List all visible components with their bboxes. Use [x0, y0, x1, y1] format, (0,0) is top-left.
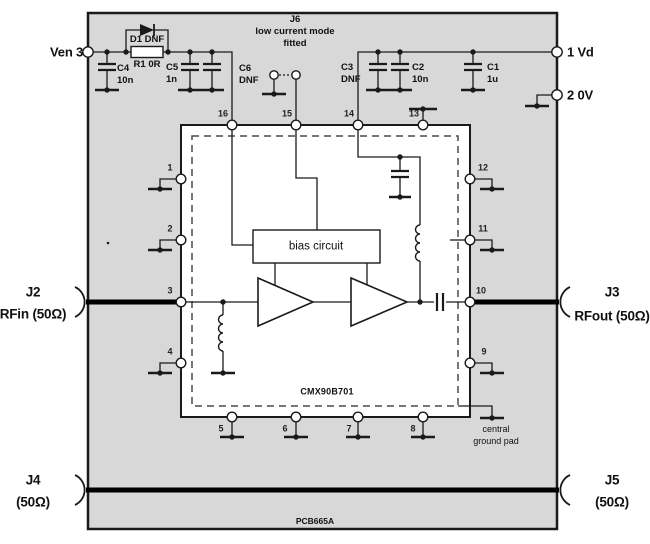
- pin-15-label: 15: [282, 110, 292, 119]
- schematic-drawing: [0, 0, 650, 544]
- connector-j5-label: J5: [605, 473, 620, 487]
- pin-14-label: 14: [344, 110, 354, 119]
- connector-j3-label: J3: [605, 285, 620, 299]
- cap-c3-label: C3DNF: [341, 62, 361, 86]
- pin-13-label: 13: [409, 110, 419, 119]
- schematic-page: Ven 3 1 Vd 2 0V D1 DNF R1 0R C410n C51n …: [0, 0, 650, 544]
- jumper-j6-label: J6 low current mode fitted: [255, 14, 334, 50]
- connector-j4-desc: (50Ω): [16, 495, 50, 509]
- connector-j2-desc: RFin (50Ω): [0, 307, 66, 321]
- resistor-symbol: [131, 47, 163, 58]
- cap-c1-label: C11u: [487, 62, 499, 86]
- cap-c2-label: C210n: [412, 62, 428, 86]
- pin-4-label: 4: [167, 348, 172, 357]
- connector-j3-desc: RFout (50Ω): [574, 309, 649, 323]
- resistor-r1-label: R1 0R: [134, 59, 161, 71]
- board-name-label: PCB665A: [296, 517, 334, 526]
- cap-c5-label: C51n: [166, 62, 178, 86]
- bias-circuit-label: bias circuit: [289, 241, 343, 253]
- pin-12-label: 12: [478, 164, 488, 173]
- pin-8-label: 8: [410, 425, 415, 434]
- pin-11-label: 11: [478, 225, 488, 234]
- stray-mark: [107, 242, 110, 245]
- terminal-0v-label: 2 0V: [567, 89, 593, 102]
- pin-16-label: 16: [218, 110, 228, 119]
- terminal-vd-label: 1 Vd: [567, 46, 594, 59]
- diode-d1-label: D1 DNF: [130, 34, 164, 46]
- pin-1-label: 1: [167, 164, 172, 173]
- pin-9-label: 9: [481, 348, 486, 357]
- cap-c6-label: C6DNF: [239, 63, 259, 87]
- pin-7-label: 7: [346, 425, 351, 434]
- pin-6-label: 6: [282, 425, 287, 434]
- pin-5-label: 5: [218, 425, 223, 434]
- pin-3-label: 3: [167, 287, 172, 296]
- connector-j4-label: J4: [26, 473, 41, 487]
- pin-2-label: 2: [167, 225, 172, 234]
- connector-j2-label: J2: [26, 285, 41, 299]
- chip-name-label: CMX90B701: [300, 388, 353, 397]
- connector-j5-desc: (50Ω): [595, 495, 629, 509]
- pin-10-label: 10: [476, 287, 486, 296]
- central-ground-pad-label: central ground pad: [473, 423, 519, 447]
- terminal-ven-label: Ven 3: [50, 46, 83, 59]
- cap-c4-label: C410n: [117, 63, 133, 87]
